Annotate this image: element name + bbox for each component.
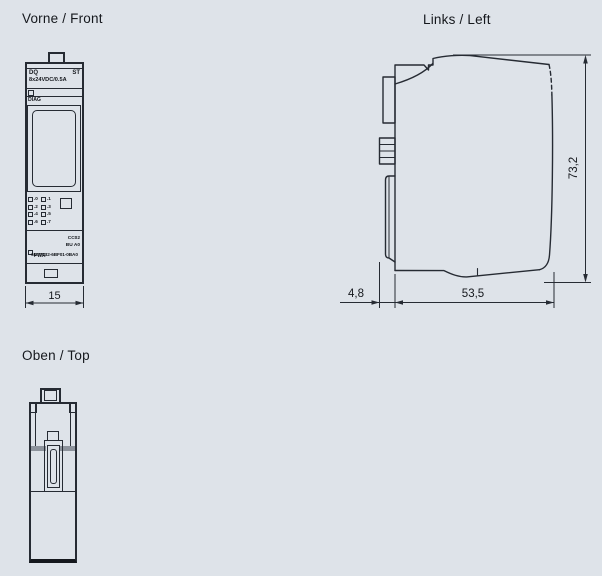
channel-led-4: .4 <box>28 212 40 217</box>
front-divider-3 <box>27 230 82 231</box>
arrow-down-icon <box>583 274 588 283</box>
left-view-rail-strip <box>386 176 396 262</box>
front-bottom-notch <box>44 269 58 278</box>
channel-led-7: .7 <box>41 220 53 225</box>
left-view-connector-block <box>383 77 395 123</box>
article-number-label: 6ES7132-6BF01-0BA0 <box>27 253 82 258</box>
diag-led <box>28 90 34 96</box>
arrow-up-icon <box>583 55 588 64</box>
led-square-icon <box>28 220 33 225</box>
front-cover-plate-inner <box>32 110 76 187</box>
color-code-label: CC02 <box>68 237 80 242</box>
led-square-icon <box>41 197 46 202</box>
arrow-right-icon <box>546 300 554 305</box>
channel-led-3: .3 <box>41 205 53 210</box>
dim-connector-depth-label: 4,8 <box>348 288 364 300</box>
top-latch-slot <box>50 449 57 484</box>
arrow-left-icon <box>26 301 34 306</box>
top-inner-wall-left <box>35 404 36 447</box>
front-view-title: Vorne / Front <box>22 11 103 26</box>
dim-body-depth-label: 53,5 <box>462 288 484 300</box>
channel-led-5: .5 <box>41 212 53 217</box>
left-view-bottom-edge <box>395 270 540 277</box>
front-top-strip-line <box>27 68 82 69</box>
front-width-dimension: 15 <box>14 284 96 312</box>
front-small-window <box>60 198 72 209</box>
left-view-dimension-lines <box>340 55 591 308</box>
technical-drawing: Vorne / Front DQ ST 8x24VDC/0.5A DIAG .0… <box>0 0 602 576</box>
arrow-right-icon <box>372 300 380 305</box>
front-divider-4 <box>27 263 82 264</box>
channel-led-1: .1 <box>41 197 53 202</box>
led-square-icon <box>41 220 46 225</box>
module-rating-label: 8x24VDC/0.5A <box>29 78 67 84</box>
diag-label: DIAG <box>28 98 41 103</box>
dim-height-label: 73,2 <box>568 157 580 179</box>
left-view-bus-ribs-lines <box>380 145 396 158</box>
channel-led-0: .0 <box>28 197 40 202</box>
front-module-body: DQ ST 8x24VDC/0.5A DIAG .0 .1 .2 .3 .4 .… <box>25 62 84 284</box>
top-view-title: Oben / Top <box>22 348 90 363</box>
top-connector-tab-inner <box>44 390 57 401</box>
led-square-icon <box>41 212 46 217</box>
left-view-front-curve <box>395 64 433 85</box>
led-square-icon <box>28 212 33 217</box>
led-square-icon <box>28 205 33 210</box>
channel-led-2: .2 <box>28 205 40 210</box>
channel-led-block: .0 .1 .2 .3 .4 .5 .6 .7 <box>28 197 53 225</box>
channel-led-6: .6 <box>28 220 40 225</box>
led-square-icon <box>28 197 33 202</box>
arrow-left-icon <box>395 300 403 305</box>
left-view-right-edge <box>540 95 553 270</box>
left-view-body-outline <box>395 55 549 270</box>
top-inner-wall-right <box>70 404 71 447</box>
front-divider-1 <box>27 88 82 89</box>
front-type-row: DQ ST <box>29 70 80 76</box>
base-unit-label: BU A0 <box>66 244 80 249</box>
arrow-right-icon <box>76 301 84 306</box>
dim-width-label: 15 <box>48 290 60 302</box>
module-variant-label: ST <box>72 70 80 76</box>
top-corner-post-left <box>31 404 37 413</box>
left-view-drawing: 73,2 53,5 4,8 <box>330 40 602 325</box>
left-view-title: Links / Left <box>423 12 491 27</box>
led-square-icon <box>41 205 46 210</box>
left-view-right-edge-dashed <box>549 65 552 96</box>
module-type-label: DQ <box>29 70 38 76</box>
